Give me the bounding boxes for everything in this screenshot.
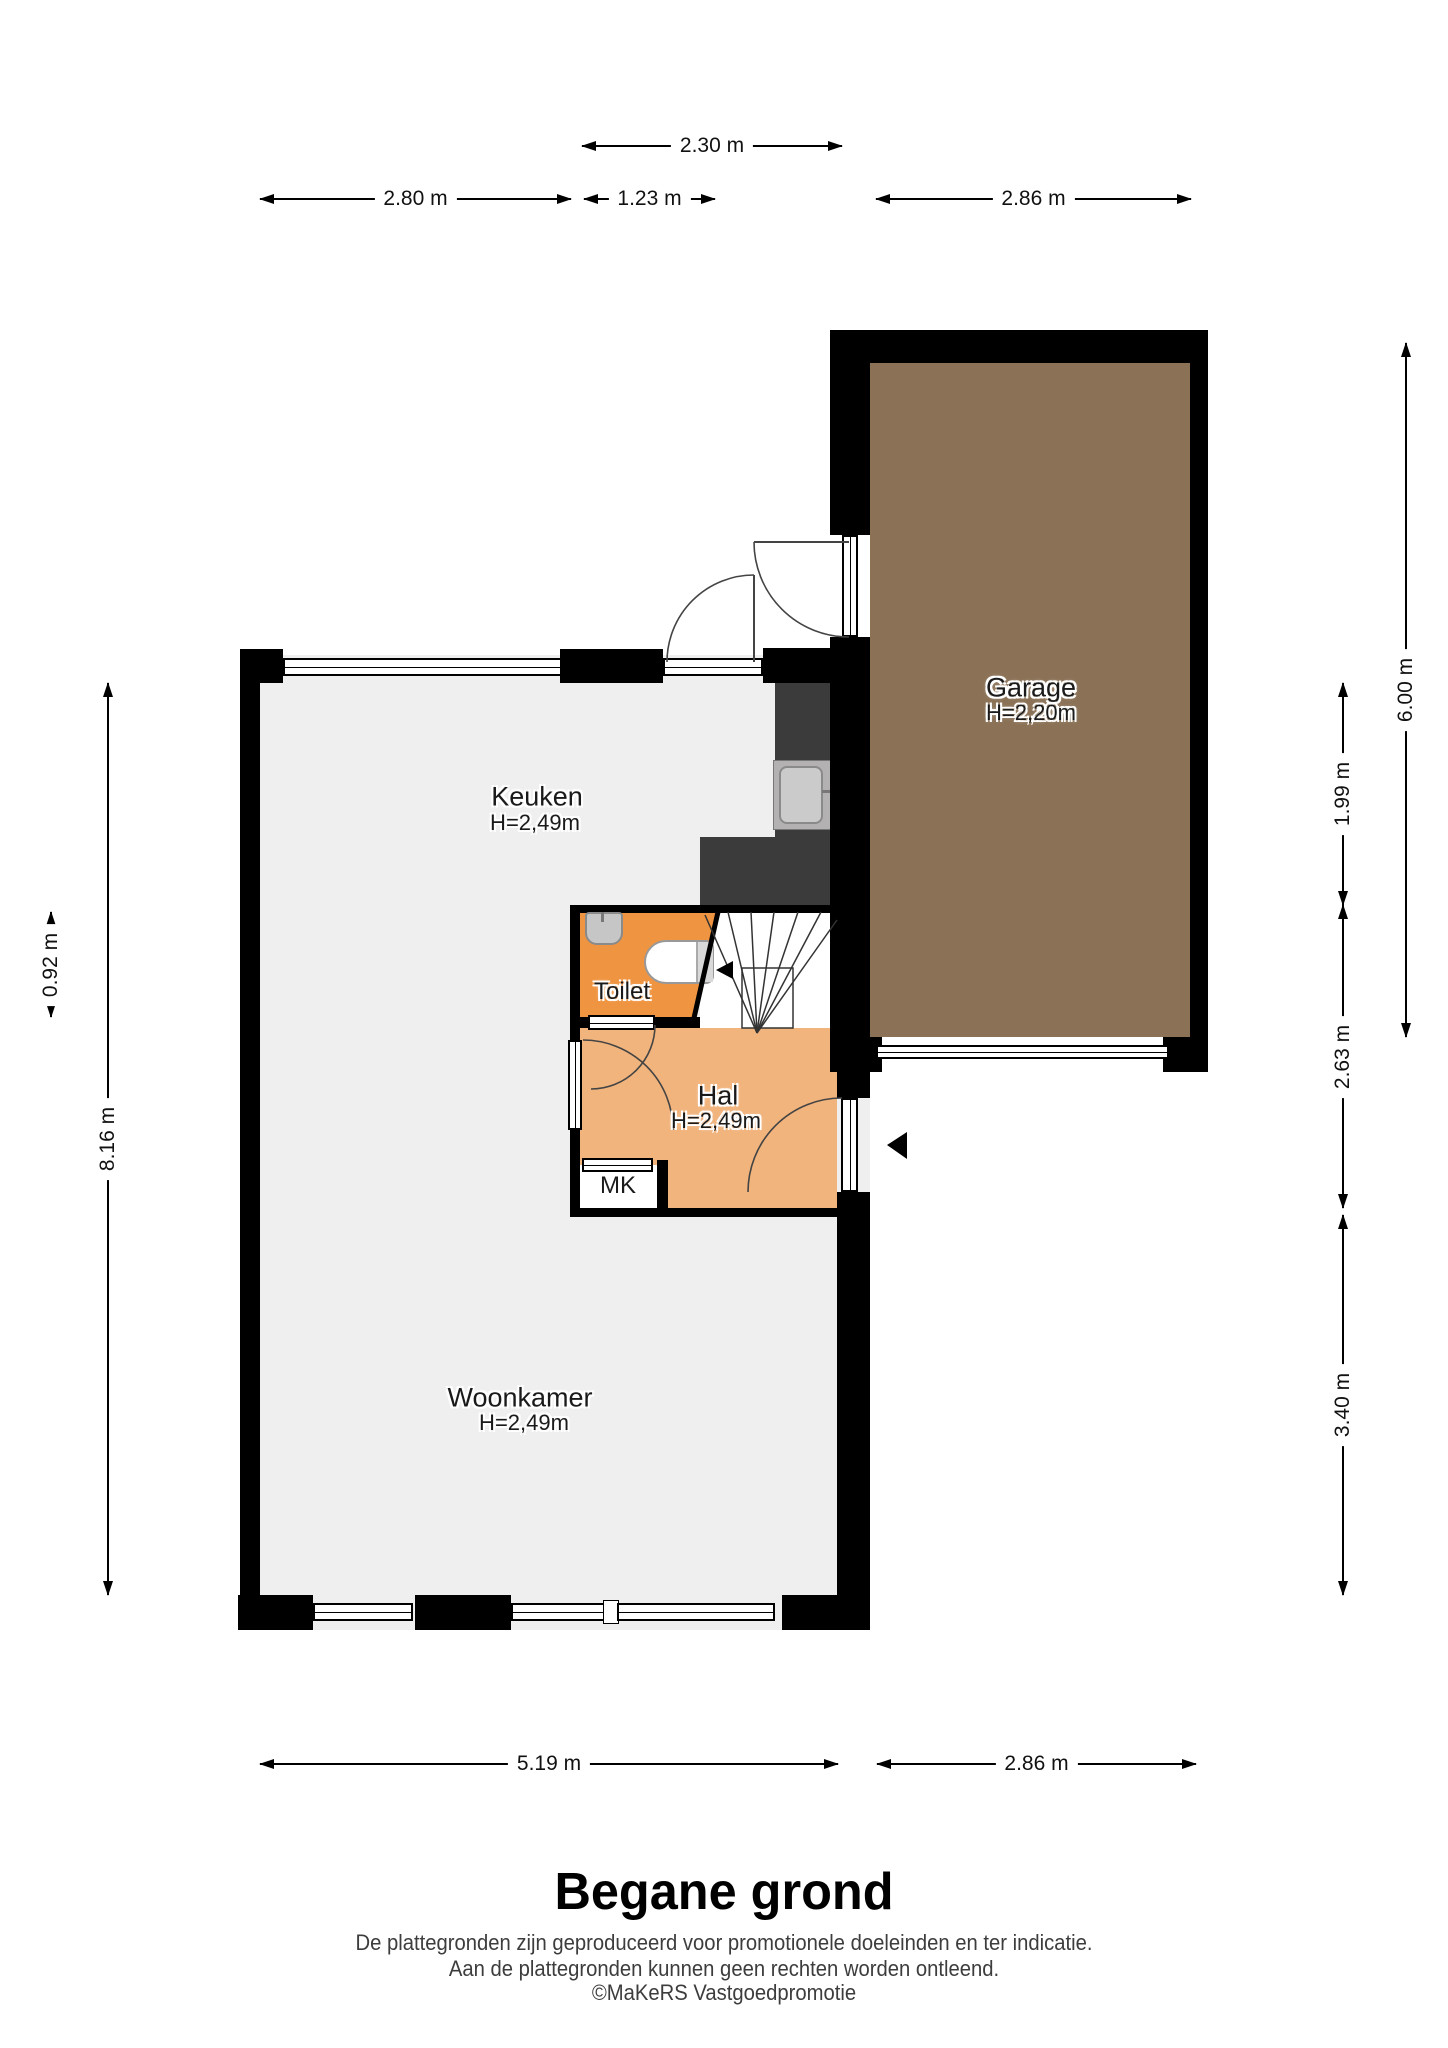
window-top-keuken bbox=[283, 658, 562, 676]
disclaimer-line-3: ©MaKeRS Vastgoedpromotie bbox=[58, 1980, 1390, 2006]
dim-top-230: 2.30 m bbox=[582, 145, 842, 147]
dim-top-280: 2.80 m bbox=[260, 198, 571, 200]
room-label-woonkamer: Woonkamer bbox=[447, 1383, 592, 1414]
toilet-washbasin-tap-icon bbox=[601, 912, 604, 922]
room-label-mk: MK bbox=[600, 1172, 636, 1200]
window-bottom-3 bbox=[617, 1603, 775, 1621]
garage-side-door-frame bbox=[842, 535, 858, 637]
room-label-toilet: Toilet bbox=[594, 978, 650, 1006]
dim-top-123: 1.23 m bbox=[584, 198, 715, 200]
wall-garage-top bbox=[830, 330, 1208, 363]
disclaimer-line-1: De plattegronden zijn geproduceerd voor … bbox=[58, 1930, 1390, 1956]
dim-left-092: 0.92 m bbox=[50, 912, 52, 1017]
wall-corner-bottomleft bbox=[238, 1595, 313, 1630]
mk-door bbox=[582, 1158, 653, 1172]
room-label-garage: Garage bbox=[986, 673, 1076, 704]
keuken-hal-door-frame bbox=[568, 1040, 582, 1130]
dim-right-263: 2.63 m bbox=[1342, 905, 1344, 1208]
room-label-hal: Hal bbox=[698, 1081, 739, 1112]
room-height-hal: H=2,49m bbox=[671, 1108, 761, 1134]
wall-garage-bottom-right bbox=[1163, 1037, 1208, 1072]
wall-hal-left-lower bbox=[570, 1130, 580, 1215]
dim-right-600: 6.00 m bbox=[1405, 343, 1407, 1037]
toilet-tank-icon bbox=[696, 942, 713, 982]
window-bottom-2 bbox=[511, 1603, 607, 1621]
dim-arrow-right-icon bbox=[828, 141, 843, 151]
wall-top-mid bbox=[560, 649, 663, 683]
wall-right-upper bbox=[837, 1072, 870, 1098]
page-title: Begane grond bbox=[22, 1862, 1427, 1922]
dim-bottom-519: 5.19 m bbox=[260, 1763, 838, 1765]
wall-right-lower bbox=[837, 1192, 870, 1630]
disclaimer-line-2: Aan de plattegronden kunnen geen rechten… bbox=[58, 1956, 1390, 1982]
dim-right-340: 3.40 m bbox=[1342, 1215, 1344, 1595]
wall-garage-bottom-left bbox=[830, 1037, 882, 1072]
room-label-keuken: Keuken bbox=[491, 782, 583, 813]
toilet-door-frame bbox=[588, 1015, 655, 1030]
wall-hal-left-upper bbox=[570, 905, 580, 1040]
garage-overhead-door bbox=[876, 1045, 1169, 1059]
dim-left-816: 8.16 m bbox=[107, 683, 109, 1595]
entrance-door-frame bbox=[841, 1098, 858, 1192]
wall-toilet-bottom-b bbox=[653, 1017, 700, 1028]
room-height-keuken: H=2,49m bbox=[490, 810, 580, 836]
floorplan-page: { "plan": { "title": "Begane grond", "di… bbox=[0, 0, 1448, 2048]
wall-left bbox=[240, 649, 260, 1630]
kitchen-counter-bottom bbox=[700, 837, 775, 905]
wall-bottom-mid bbox=[415, 1595, 511, 1630]
dim-bottom-286: 2.86 m bbox=[877, 1763, 1196, 1765]
stairs-floor bbox=[700, 912, 837, 1028]
dim-top-286: 2.86 m bbox=[876, 198, 1191, 200]
toilet-washbasin-icon bbox=[585, 912, 623, 945]
window-bottom-1 bbox=[313, 1603, 413, 1621]
entrance-arrow-icon bbox=[887, 1132, 907, 1159]
wall-mk-right bbox=[657, 1160, 668, 1208]
wall-garage-right bbox=[1190, 330, 1208, 1072]
room-height-garage: H=2,20m bbox=[986, 700, 1076, 726]
wall-corner-bottomright bbox=[782, 1595, 870, 1630]
wall-corner-topleft bbox=[240, 649, 283, 683]
room-height-woonkamer: H=2,49m bbox=[479, 1410, 569, 1436]
wall-garage-left-lower bbox=[830, 637, 870, 1072]
front-door-top-threshold bbox=[663, 658, 763, 676]
wall-garage-left-upper bbox=[830, 330, 870, 535]
dim-right-199: 1.99 m bbox=[1342, 683, 1344, 905]
kitchen-sink-basin bbox=[779, 766, 823, 824]
dim-arrow-left-icon bbox=[581, 141, 596, 151]
wall-hal-bottom bbox=[570, 1208, 837, 1217]
